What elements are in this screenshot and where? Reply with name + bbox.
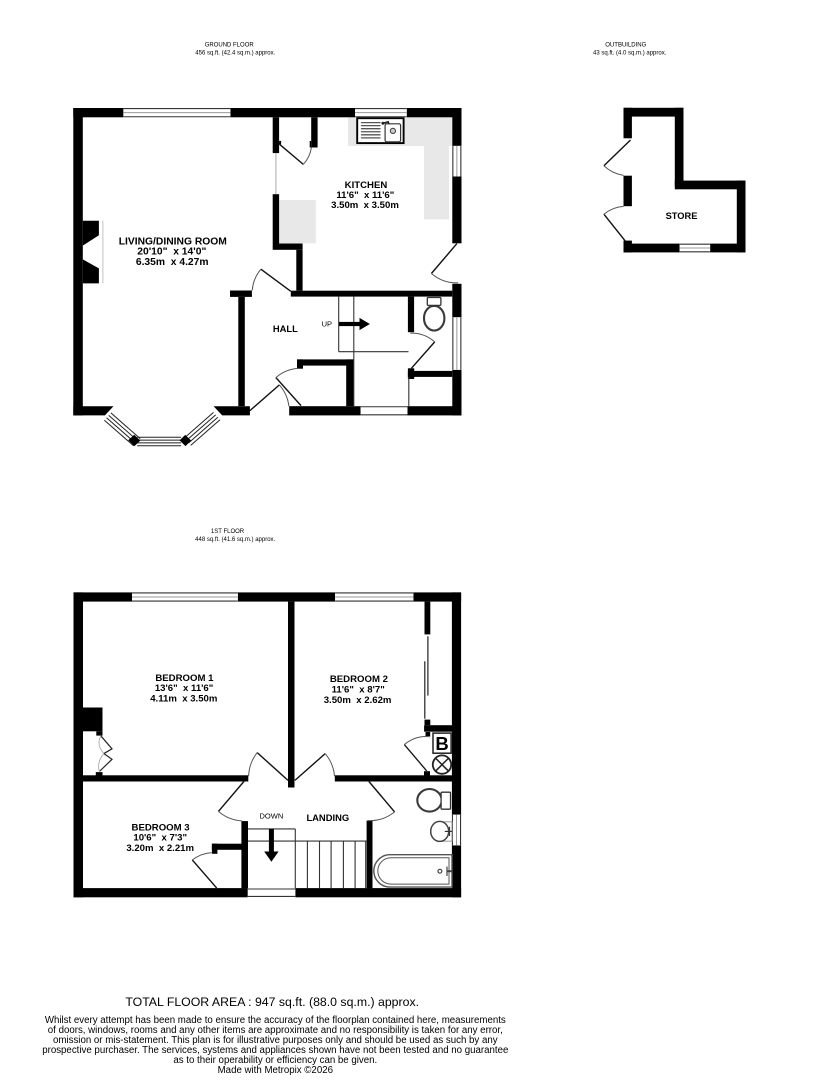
svg-text:3.20m x 2.21m: 3.20m x 2.21m	[126, 843, 194, 854]
svg-text:B: B	[435, 733, 448, 754]
svg-text:LANDING: LANDING	[306, 812, 349, 823]
svg-text:GROUND FLOOR: GROUND FLOOR	[205, 43, 255, 49]
svg-text:Made with Metropix ©2026: Made with Metropix ©2026	[218, 1065, 333, 1076]
svg-text:TOTAL FLOOR AREA : 947 sq.ft.: TOTAL FLOOR AREA : 947 sq.ft. (88.0 sq.m…	[125, 995, 419, 1009]
svg-text:4.11m x 3.50m: 4.11m x 3.50m	[150, 693, 217, 704]
svg-text:456 sq.ft. (42.4 sq.m.) approx: 456 sq.ft. (42.4 sq.m.) approx.	[195, 50, 275, 56]
svg-text:6.35m x 4.27m: 6.35m x 4.27m	[136, 257, 209, 268]
svg-text:3.50m x 3.50m: 3.50m x 3.50m	[331, 200, 399, 211]
svg-text:UP: UP	[322, 320, 332, 329]
svg-text:3.50m x 2.62m: 3.50m x 2.62m	[324, 695, 392, 706]
svg-text:LIVING/DINING ROOM: LIVING/DINING ROOM	[119, 236, 227, 247]
svg-text:OUTBUILDING: OUTBUILDING	[605, 43, 646, 49]
svg-text:43 sq.ft. (4.0 sq.m.) approx.: 43 sq.ft. (4.0 sq.m.) approx.	[593, 50, 667, 56]
svg-text:HALL: HALL	[273, 323, 298, 334]
svg-text:DOWN: DOWN	[260, 811, 284, 820]
svg-text:STORE: STORE	[666, 211, 698, 221]
svg-text:1ST FLOOR: 1ST FLOOR	[211, 529, 245, 535]
svg-text:448 sq.ft. (41.6 sq.m.) approx: 448 sq.ft. (41.6 sq.m.) approx.	[195, 537, 275, 543]
